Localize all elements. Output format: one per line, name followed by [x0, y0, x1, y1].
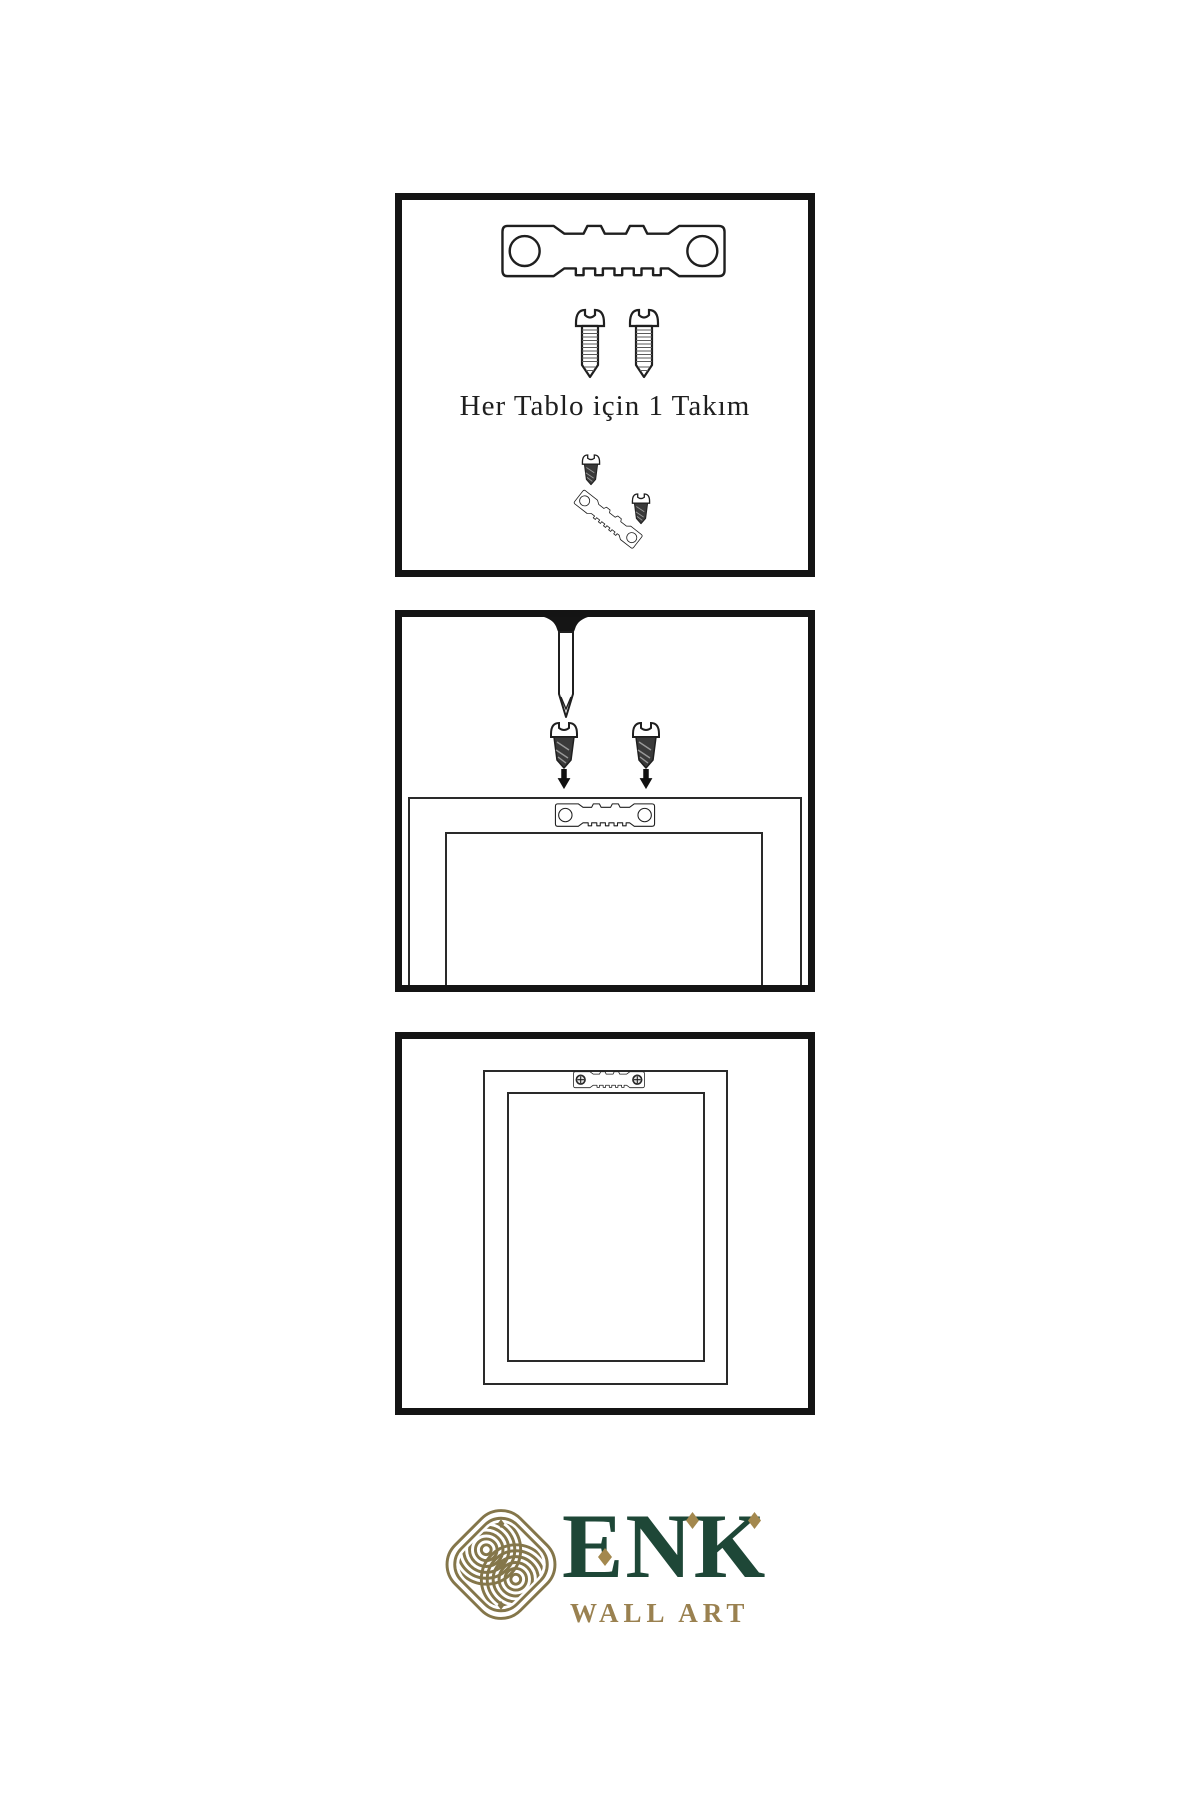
sawtooth-hanger-screwed-icon — [573, 1071, 645, 1089]
arrow-down-icon — [556, 769, 572, 791]
brand-wordmark: ENK WALL ART — [562, 1500, 772, 1630]
screw-dark-icon — [581, 453, 601, 486]
panel-mounted-frame-content — [402, 1039, 808, 1408]
panel-hardware-kit-content: Her Tablo için 1 Takım — [402, 200, 808, 570]
screw-dark-icon — [631, 720, 661, 770]
brand-name: ENK — [562, 1500, 767, 1592]
screw-dark-icon — [549, 720, 579, 770]
panel-nail-and-screws-content — [402, 617, 808, 985]
screw-dark-icon — [631, 492, 651, 525]
screw-icon — [573, 306, 607, 380]
kit-caption: Her Tablo için 1 Takım — [402, 390, 808, 423]
brand-tagline: WALL ART — [570, 1598, 749, 1629]
frame-back-inner-edge — [445, 832, 763, 985]
screw-icon — [627, 306, 661, 380]
panel-hardware-kit: Her Tablo için 1 Takım — [395, 193, 815, 577]
sawtooth-hanger-icon — [497, 224, 730, 280]
sawtooth-hanger-icon — [553, 803, 657, 828]
panel-nail-and-screws — [395, 610, 815, 992]
instruction-sheet: Her Tablo için 1 Takım — [0, 0, 1200, 1800]
frame-back-inner-edge — [507, 1092, 705, 1362]
nail-in-wall-icon — [543, 617, 589, 721]
panel-mounted-frame — [395, 1032, 815, 1415]
interlaced-knot-icon — [442, 1502, 560, 1627]
arrow-down-icon — [638, 769, 654, 791]
